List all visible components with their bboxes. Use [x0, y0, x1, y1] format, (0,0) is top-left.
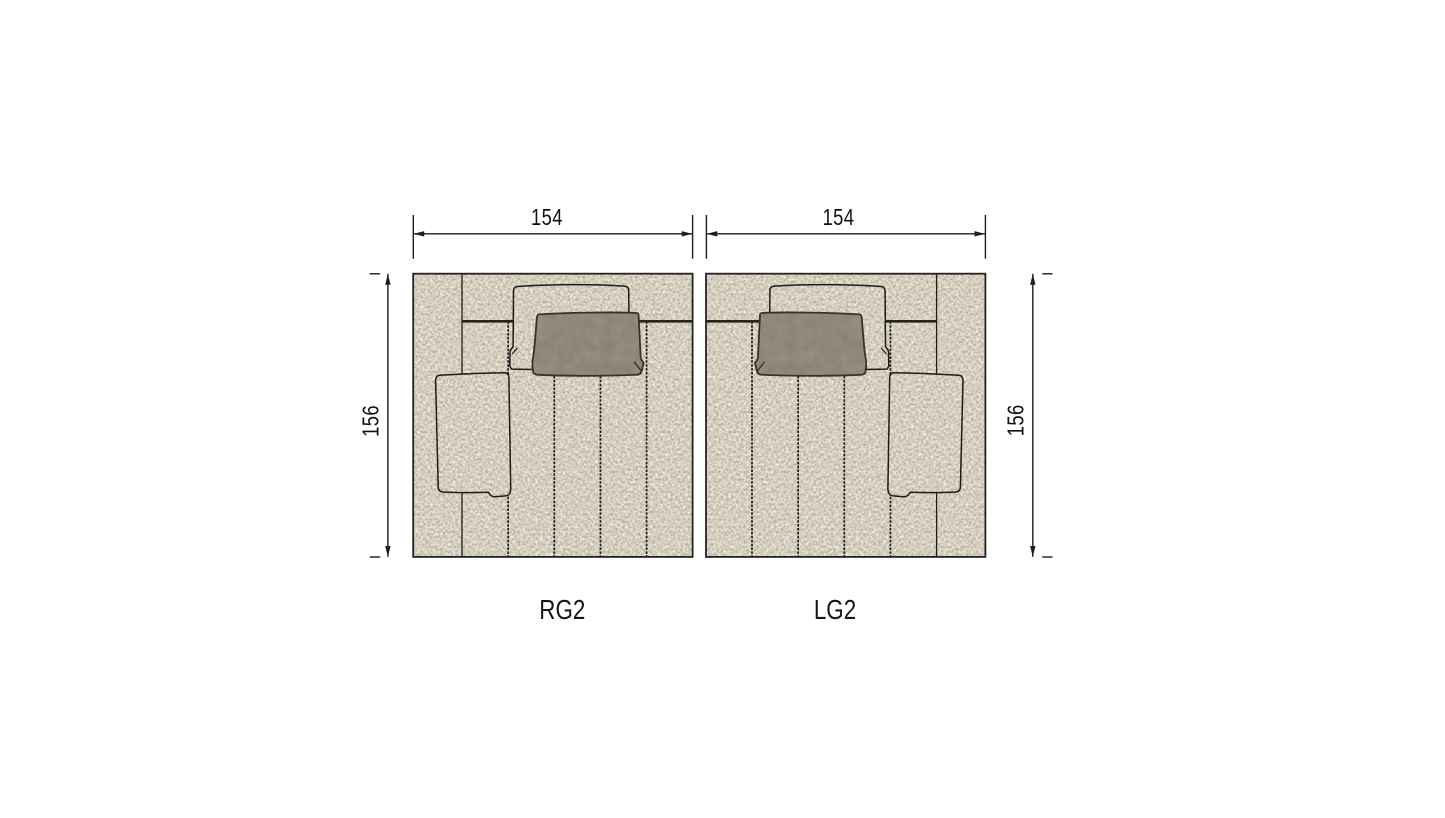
svg-text:LG2: LG2 — [814, 595, 856, 626]
svg-text:154: 154 — [823, 205, 855, 230]
svg-text:156: 156 — [1004, 404, 1029, 436]
svg-text:RG2: RG2 — [539, 595, 585, 626]
svg-text:154: 154 — [531, 205, 563, 230]
svg-text:156: 156 — [359, 405, 384, 437]
